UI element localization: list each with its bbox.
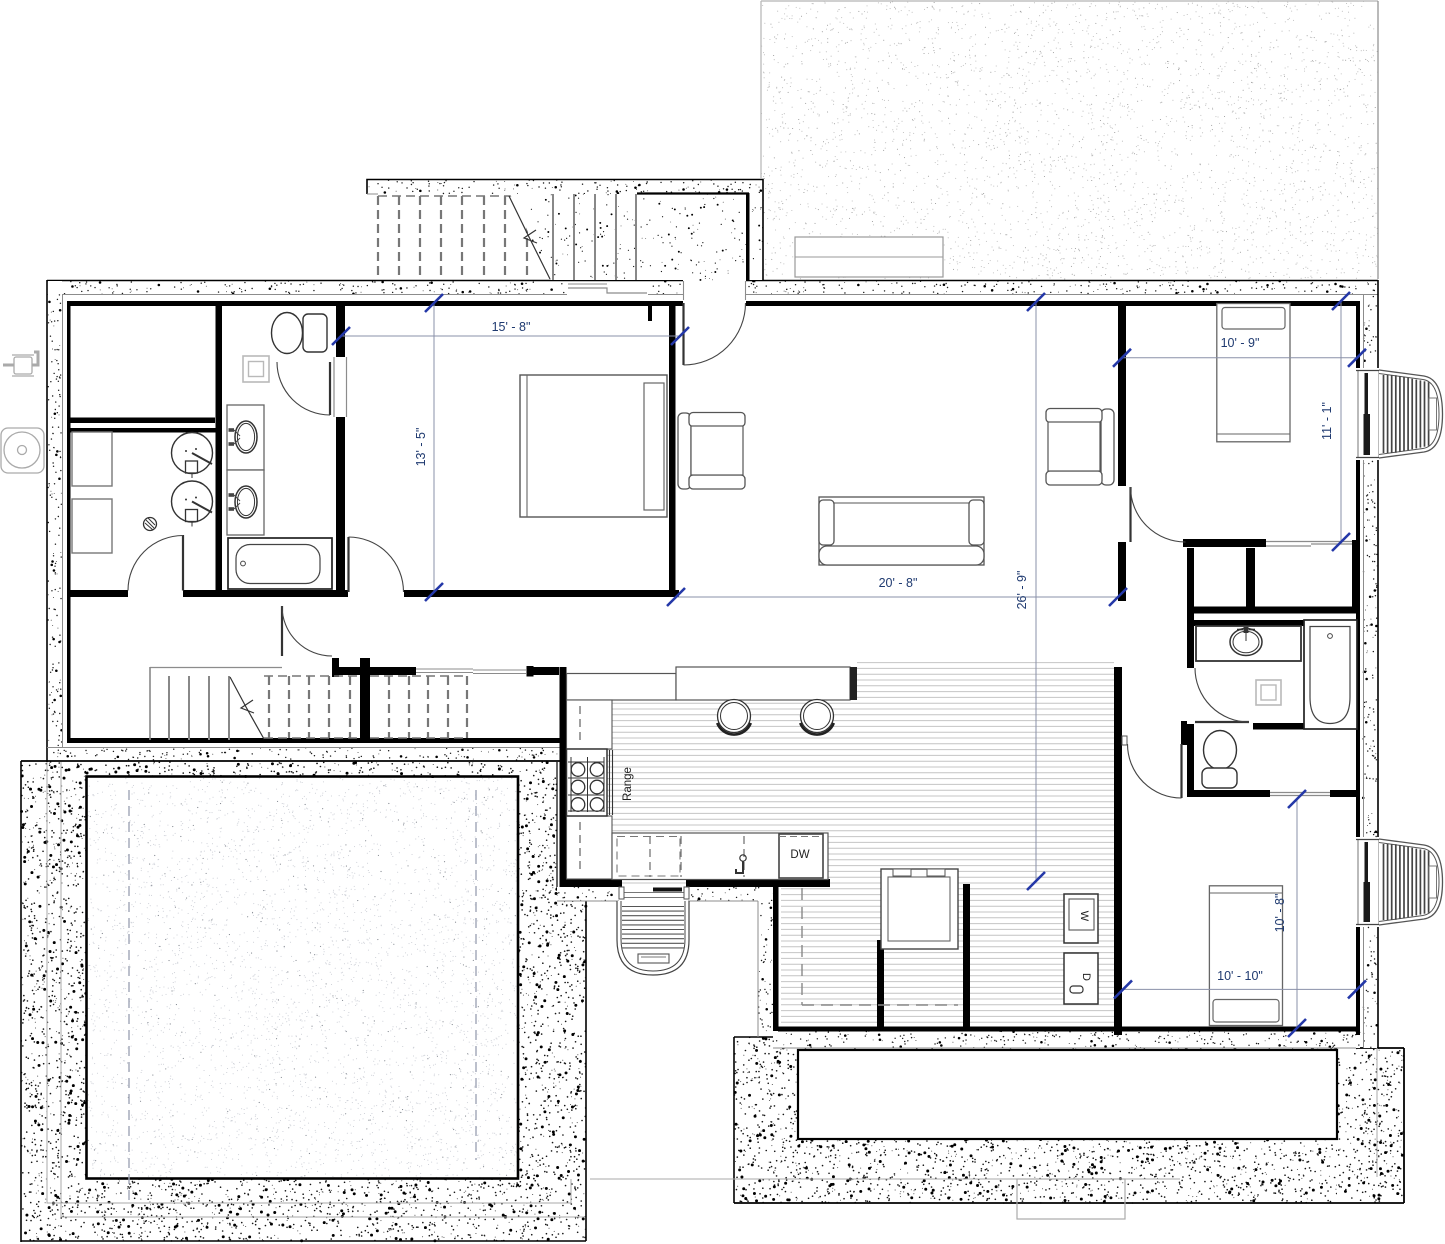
svg-text:D: D bbox=[1080, 973, 1092, 981]
svg-text:DW: DW bbox=[790, 849, 809, 861]
svg-text:W: W bbox=[1078, 911, 1090, 922]
svg-text:15' - 8": 15' - 8" bbox=[492, 320, 531, 334]
svg-text:Range: Range bbox=[622, 767, 634, 801]
svg-text:13' - 5": 13' - 5" bbox=[414, 428, 428, 467]
svg-text:26' - 9": 26' - 9" bbox=[1015, 571, 1029, 610]
svg-text:10' - 10": 10' - 10" bbox=[1217, 969, 1263, 983]
svg-text:11' - 1": 11' - 1" bbox=[1320, 402, 1334, 440]
svg-text:10' - 9": 10' - 9" bbox=[1221, 336, 1260, 350]
svg-text:10' - 8": 10' - 8" bbox=[1273, 894, 1287, 933]
svg-text:20' - 8": 20' - 8" bbox=[879, 576, 918, 590]
